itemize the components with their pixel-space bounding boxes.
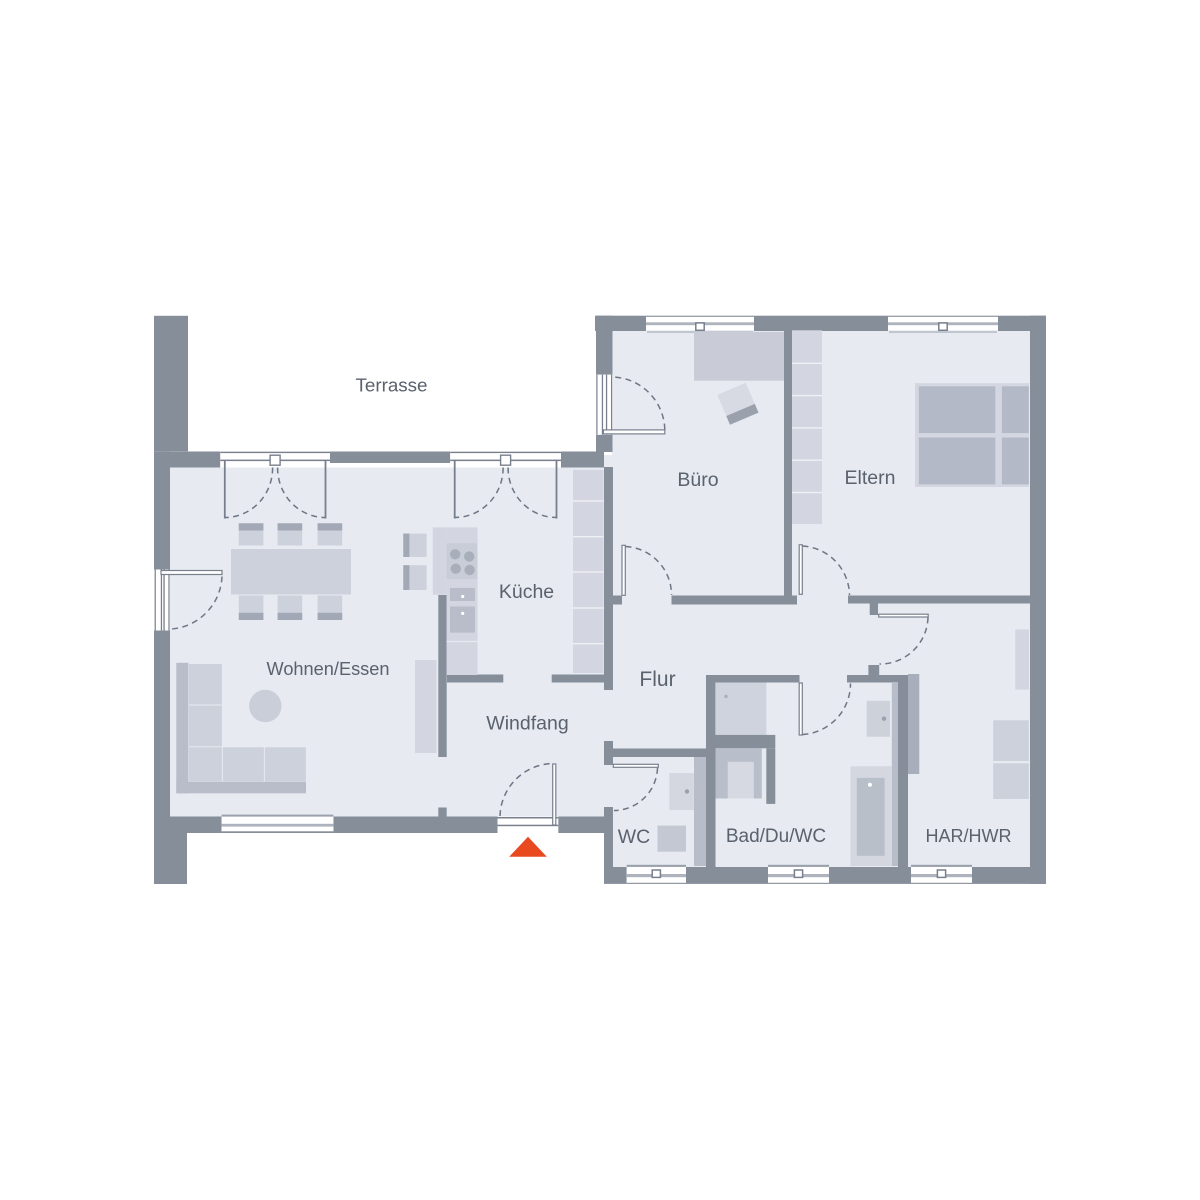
svg-text:Büro: Büro bbox=[677, 469, 718, 491]
svg-text:Wohnen/Essen: Wohnen/Essen bbox=[266, 659, 389, 679]
svg-text:Windfang: Windfang bbox=[486, 713, 568, 735]
svg-text:WC: WC bbox=[618, 826, 651, 848]
svg-text:Bad/Du/WC: Bad/Du/WC bbox=[726, 826, 826, 847]
svg-text:Küche: Küche bbox=[499, 581, 554, 603]
svg-text:HAR/HWR: HAR/HWR bbox=[926, 826, 1012, 846]
svg-text:Terrasse: Terrasse bbox=[355, 375, 427, 396]
svg-text:Eltern: Eltern bbox=[845, 467, 896, 489]
svg-text:Flur: Flur bbox=[639, 668, 675, 691]
